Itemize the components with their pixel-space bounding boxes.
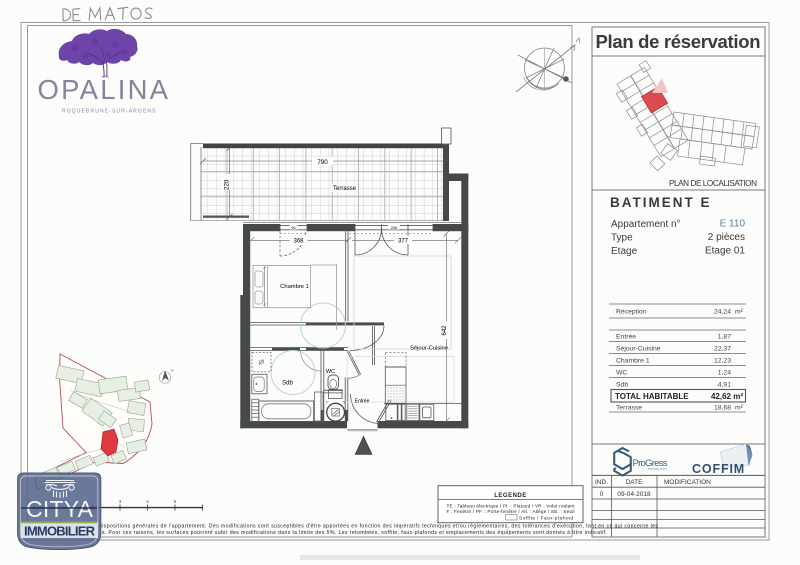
svg-text:LEGENDE: LEGENDE [494,493,527,499]
svg-text:Terrasse: Terrasse [333,186,357,192]
svg-text:Etage: Etage [611,246,638,257]
svg-text:4,91: 4,91 [718,381,731,388]
svg-text:1,24: 1,24 [718,369,731,376]
svg-text:0: 0 [600,491,604,498]
svg-text:Soffite / Faux-plafond: Soffite / Faux-plafond [519,515,573,520]
svg-text:F : Fenêtre / PF. : Porte-fenê: F : Fenêtre / PF. : Porte-fenêtre / All.… [447,509,575,514]
svg-text:MODIFICATION: MODIFICATION [664,479,711,486]
svg-text:22,37: 22,37 [714,345,731,352]
svg-text:IMMOBILIER: IMMOBILIER [24,524,96,539]
svg-text:Chambre 1: Chambre 1 [280,284,309,290]
svg-text:OPALINA: OPALINA [38,74,171,105]
svg-text:368: 368 [293,238,304,244]
svg-text:642: 642 [442,325,448,336]
svg-text:377: 377 [398,238,409,244]
svg-text:790: 790 [317,159,328,166]
svg-text:m²: m² [735,405,744,412]
svg-text:Entrée: Entrée [616,334,636,341]
svg-text:CITYA: CITYA [26,496,94,522]
svg-text:Etage 01: Etage 01 [705,246,745,257]
svg-text:Appartement n°: Appartement n° [611,219,681,230]
svg-text:BATIMENT E: BATIMENT E [610,195,712,210]
svg-text:Type: Type [611,233,633,244]
svg-text:Terrasse: Terrasse [616,405,642,412]
svg-text:3: 3 [119,499,122,504]
svg-text:TE : Tableau électrique / Pl.: TE : Tableau électrique / Pl. : Placard … [447,503,576,508]
svg-text:COFFIM: COFFIM [692,462,745,476]
svg-text:42,62 m²: 42,62 m² [711,392,743,401]
svg-text:PROMOTION: PROMOTION [648,467,667,471]
svg-text:1,87: 1,87 [718,334,731,341]
svg-text:TOTAL HABITABLE: TOTAL HABITABLE [615,392,689,401]
svg-text:IND.: IND. [595,479,608,486]
svg-text:2 pièces: 2 pièces [708,232,745,243]
svg-text:E 110: E 110 [720,219,746,230]
svg-text:m²: m² [735,309,744,316]
svg-text:Séjour-Cuisine: Séjour-Cuisine [616,345,661,352]
svg-text:WC: WC [616,369,627,376]
svg-text:18,68: 18,68 [714,405,731,412]
svg-text:Sdb: Sdb [616,381,628,388]
svg-text:Séjour-Cuisine: Séjour-Cuisine [410,346,448,352]
svg-text:Entrée: Entrée [355,398,370,404]
svg-text:Réception: Réception [616,309,647,316]
svg-text:12,23: 12,23 [714,357,731,364]
svg-text:Sdb: Sdb [282,381,293,387]
svg-text:240: 240 [391,226,397,230]
svg-text:24,24: 24,24 [714,309,731,316]
svg-text:DATE: DATE [626,479,644,486]
svg-text:5: 5 [174,499,177,504]
svg-text:Chambre 1: Chambre 1 [616,357,650,364]
svg-text:WC: WC [326,369,335,375]
svg-text:ROQUEBRUNE-SUR-ARGENS: ROQUEBRUNE-SUR-ARGENS [62,109,157,115]
svg-text:dispositions générales de l'ap: dispositions générales de l'appartement.… [99,524,658,530]
svg-text:4: 4 [146,499,149,504]
svg-text:N: N [170,368,175,373]
svg-text:90: 90 [292,226,296,230]
svg-text:PLAN DE LOCALISATION: PLAN DE LOCALISATION [669,179,757,188]
svg-text:220: 220 [224,179,231,190]
svg-text:ts. Pour ces raisons, les surf: ts. Pour ces raisons, les surfaces pourr… [100,530,607,536]
svg-text:Plan de réservation: Plan de réservation [596,31,761,52]
svg-text:09-04-2018: 09-04-2018 [617,491,651,498]
